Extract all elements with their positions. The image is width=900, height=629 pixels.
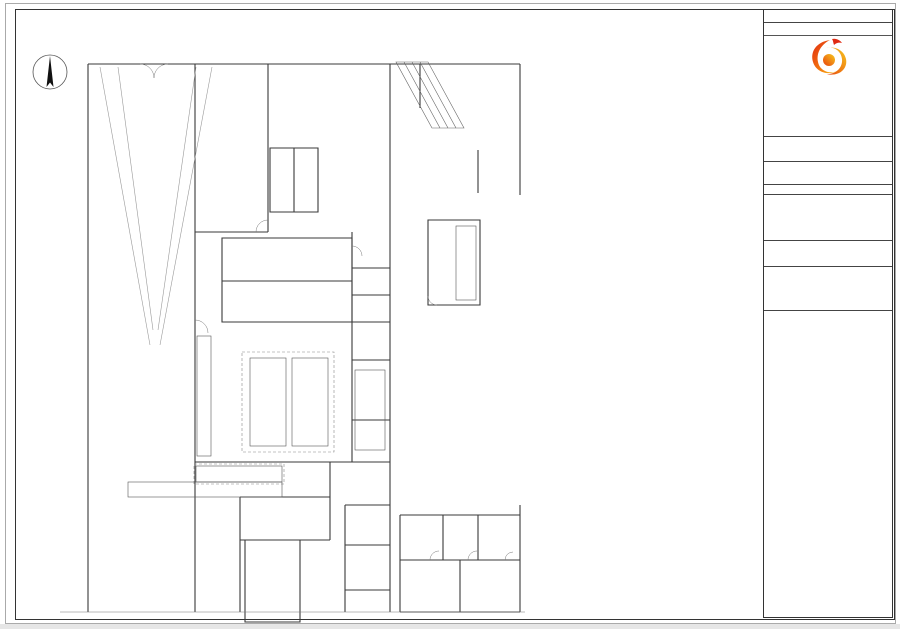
drawing-name-label bbox=[764, 195, 892, 197]
build-unit-label bbox=[764, 137, 892, 139]
door-arcs bbox=[140, 64, 513, 560]
revision-header bbox=[764, 23, 892, 36]
company-logo bbox=[806, 38, 850, 78]
project-number-label bbox=[764, 185, 892, 195]
build-unit-section bbox=[764, 137, 892, 162]
escalator bbox=[396, 62, 464, 128]
drawing-name-section bbox=[764, 195, 892, 241]
design-unit-section bbox=[764, 36, 892, 137]
sign-column-title bbox=[764, 10, 892, 23]
cooking-island bbox=[128, 226, 476, 497]
project-name-section bbox=[764, 162, 892, 185]
walls bbox=[88, 64, 520, 622]
drawing-sheet bbox=[0, 0, 900, 629]
copyright-note bbox=[764, 267, 892, 311]
floor-plan bbox=[0, 0, 530, 625]
seal-section bbox=[764, 241, 892, 267]
title-block bbox=[763, 9, 893, 618]
validity-note bbox=[764, 311, 892, 324]
north-compass bbox=[33, 55, 67, 89]
project-name-label bbox=[764, 162, 892, 164]
